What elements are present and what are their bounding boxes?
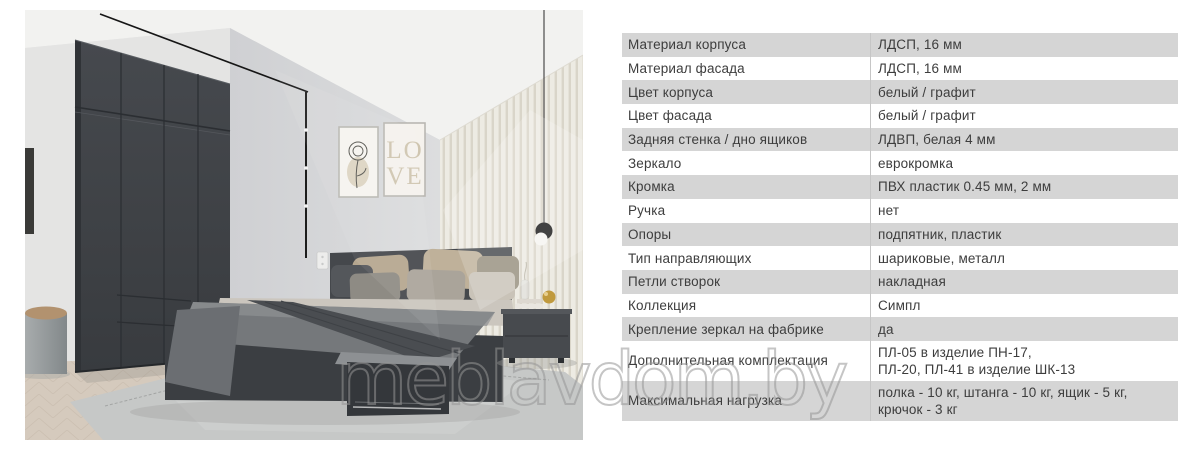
table-row: Кромка ПВХ пластик 0.45 мм, 2 мм [622,175,1178,199]
spec-value: еврокромка [870,152,1178,175]
spec-label: Кромка [622,175,870,198]
spec-label: Крепление зеркал на фабрике [622,318,870,341]
spec-label: Ручка [622,199,870,222]
spec-value: нет [870,199,1178,222]
table-row: Цвет фасада белый / графит [622,104,1178,128]
spec-label: Материал корпуса [622,33,870,56]
frame-sliver [25,148,34,234]
spec-value: накладная [870,270,1178,293]
spec-value: ЛДСП, 16 мм [870,33,1178,56]
spec-label: Коллекция [622,294,870,317]
table-row: Материал фасада ЛДСП, 16 мм [622,57,1178,81]
spec-label: Опоры [622,223,870,246]
spec-label: Цвет фасада [622,104,870,127]
bed-drawer [335,352,457,416]
product-photo: LO VE [25,10,583,440]
spec-value: белый / графит [870,81,1178,104]
spec-value: подпятник, пластик [870,223,1178,246]
wall-outlet [317,252,328,269]
spec-label: Цвет корпуса [622,81,870,104]
specs-table: Материал корпуса ЛДСП, 16 мм Материал фа… [622,33,1178,421]
spec-label: Максимальная нагрузка [622,389,870,412]
column-divider [870,33,871,421]
spec-value: ПВХ пластик 0.45 мм, 2 мм [870,175,1178,198]
table-row: Задняя стенка / дно ящиков ЛДВП, белая 4… [622,128,1178,152]
table-row: Максимальная нагрузка полка - 10 кг, шта… [622,381,1178,421]
table-row: Тип направляющих шариковые, металл [622,246,1178,270]
blanket-drape [165,306,240,396]
table-row: Материал корпуса ЛДСП, 16 мм [622,33,1178,57]
spec-value: ЛДСП, 16 мм [870,57,1178,80]
spec-label: Материал фасада [622,57,870,80]
table-row: Опоры подпятник, пластик [622,223,1178,247]
spec-value: ПЛ-05 в изделие ПН-17, ПЛ-20, ПЛ-41 в из… [870,341,1178,381]
table-row: Ручка нет [622,199,1178,223]
table-row: Дополнительная комплектация ПЛ-05 в изде… [622,341,1178,381]
spec-label: Зеркало [622,152,870,175]
spec-value: Симпл [870,294,1178,317]
spec-value: да [870,318,1178,341]
bedroom-photo: LO VE [25,10,583,440]
spec-value: белый / графит [870,104,1178,127]
spec-value: шариковые, металл [870,247,1178,270]
table-row: Крепление зеркал на фабрике да [622,317,1178,341]
side-stool [25,307,70,380]
spec-value: полка - 10 кг, штанга - 10 кг, ящик - 5 … [870,381,1178,421]
table-row: Зеркало еврокромка [622,151,1178,175]
spec-value: ЛДВП, белая 4 мм [870,128,1178,151]
table-row: Коллекция Симпл [622,294,1178,318]
table-row: Петли створок накладная [622,270,1178,294]
gold-ball-decor [543,291,556,304]
table-row: Цвет корпуса белый / графит [622,80,1178,104]
spec-label: Задняя стенка / дно ящиков [622,128,870,151]
spec-label: Петли створок [622,270,870,293]
spec-label: Дополнительная комплектация [622,349,870,372]
spec-label: Тип направляющих [622,247,870,270]
